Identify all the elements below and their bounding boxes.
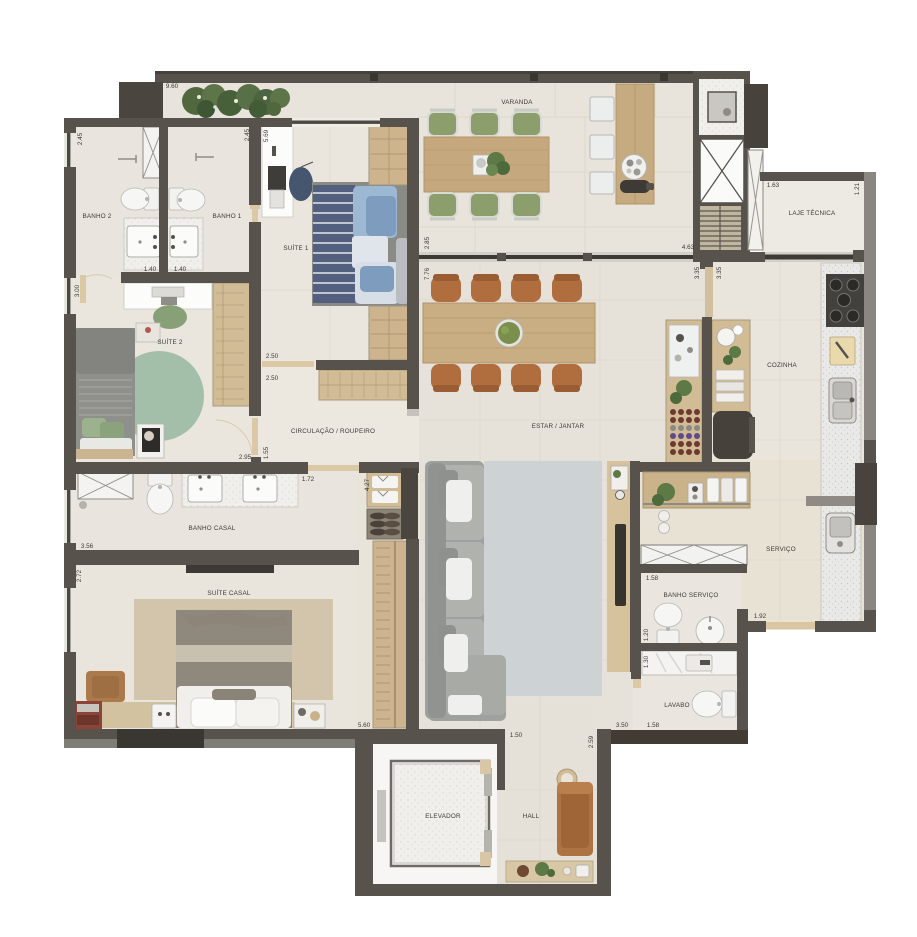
svg-text:1.55: 1.55 bbox=[263, 446, 270, 459]
svg-text:1.58: 1.58 bbox=[646, 575, 659, 582]
svg-text:5.69: 5.69 bbox=[263, 129, 270, 142]
svg-text:1.40: 1.40 bbox=[144, 266, 157, 273]
svg-text:BANHO 2: BANHO 2 bbox=[82, 213, 111, 220]
svg-text:2.59: 2.59 bbox=[588, 735, 595, 748]
svg-text:9.60: 9.60 bbox=[166, 83, 179, 90]
svg-text:BANHO SERVIÇO: BANHO SERVIÇO bbox=[664, 592, 719, 599]
svg-text:7.76: 7.76 bbox=[424, 267, 431, 280]
svg-text:1.21: 1.21 bbox=[854, 182, 861, 195]
svg-text:5.60: 5.60 bbox=[358, 722, 371, 729]
svg-text:1.40: 1.40 bbox=[174, 266, 187, 273]
svg-text:VARANDA: VARANDA bbox=[501, 99, 533, 106]
svg-text:SUÍTE CASAL: SUÍTE CASAL bbox=[207, 588, 250, 597]
svg-text:3.35: 3.35 bbox=[694, 266, 701, 279]
svg-text:1.20: 1.20 bbox=[643, 628, 650, 641]
svg-text:2.50: 2.50 bbox=[266, 353, 279, 360]
svg-text:1.30: 1.30 bbox=[643, 655, 650, 668]
svg-text:2.50: 2.50 bbox=[266, 375, 279, 382]
svg-text:ELEVADOR: ELEVADOR bbox=[425, 813, 461, 820]
svg-text:4.63: 4.63 bbox=[682, 244, 695, 251]
svg-text:4.27: 4.27 bbox=[364, 478, 371, 491]
svg-text:LAVABO: LAVABO bbox=[664, 702, 689, 709]
svg-text:ESTAR / JANTAR: ESTAR / JANTAR bbox=[532, 423, 585, 430]
svg-text:3.00: 3.00 bbox=[74, 284, 81, 297]
svg-text:2.45: 2.45 bbox=[244, 128, 251, 141]
svg-text:HALL: HALL bbox=[523, 813, 540, 820]
svg-text:SERVIÇO: SERVIÇO bbox=[766, 546, 796, 553]
svg-text:1.50: 1.50 bbox=[510, 732, 523, 739]
svg-text:3.35: 3.35 bbox=[716, 266, 723, 279]
svg-text:SUÍTE 1: SUÍTE 1 bbox=[283, 243, 308, 252]
svg-text:BANHO CASAL: BANHO CASAL bbox=[189, 525, 236, 532]
svg-text:1.58: 1.58 bbox=[647, 722, 660, 729]
svg-text:3.50: 3.50 bbox=[616, 722, 629, 729]
svg-text:1.63: 1.63 bbox=[767, 182, 780, 189]
svg-text:2.85: 2.85 bbox=[424, 236, 431, 249]
svg-text:2.72: 2.72 bbox=[76, 569, 83, 582]
svg-text:2.95: 2.95 bbox=[239, 454, 252, 461]
svg-text:3.56: 3.56 bbox=[81, 543, 94, 550]
svg-text:CIRCULAÇÃO / ROUPEIRO: CIRCULAÇÃO / ROUPEIRO bbox=[291, 426, 375, 435]
svg-text:LAJE TÉCNICA: LAJE TÉCNICA bbox=[789, 208, 836, 217]
svg-text:1.92: 1.92 bbox=[754, 613, 767, 620]
svg-text:SUÍTE 2: SUÍTE 2 bbox=[157, 337, 182, 346]
svg-text:2.45: 2.45 bbox=[77, 132, 84, 145]
svg-text:1.72: 1.72 bbox=[302, 476, 315, 483]
svg-text:COZINHA: COZINHA bbox=[767, 362, 797, 369]
svg-text:BANHO 1: BANHO 1 bbox=[212, 213, 241, 220]
